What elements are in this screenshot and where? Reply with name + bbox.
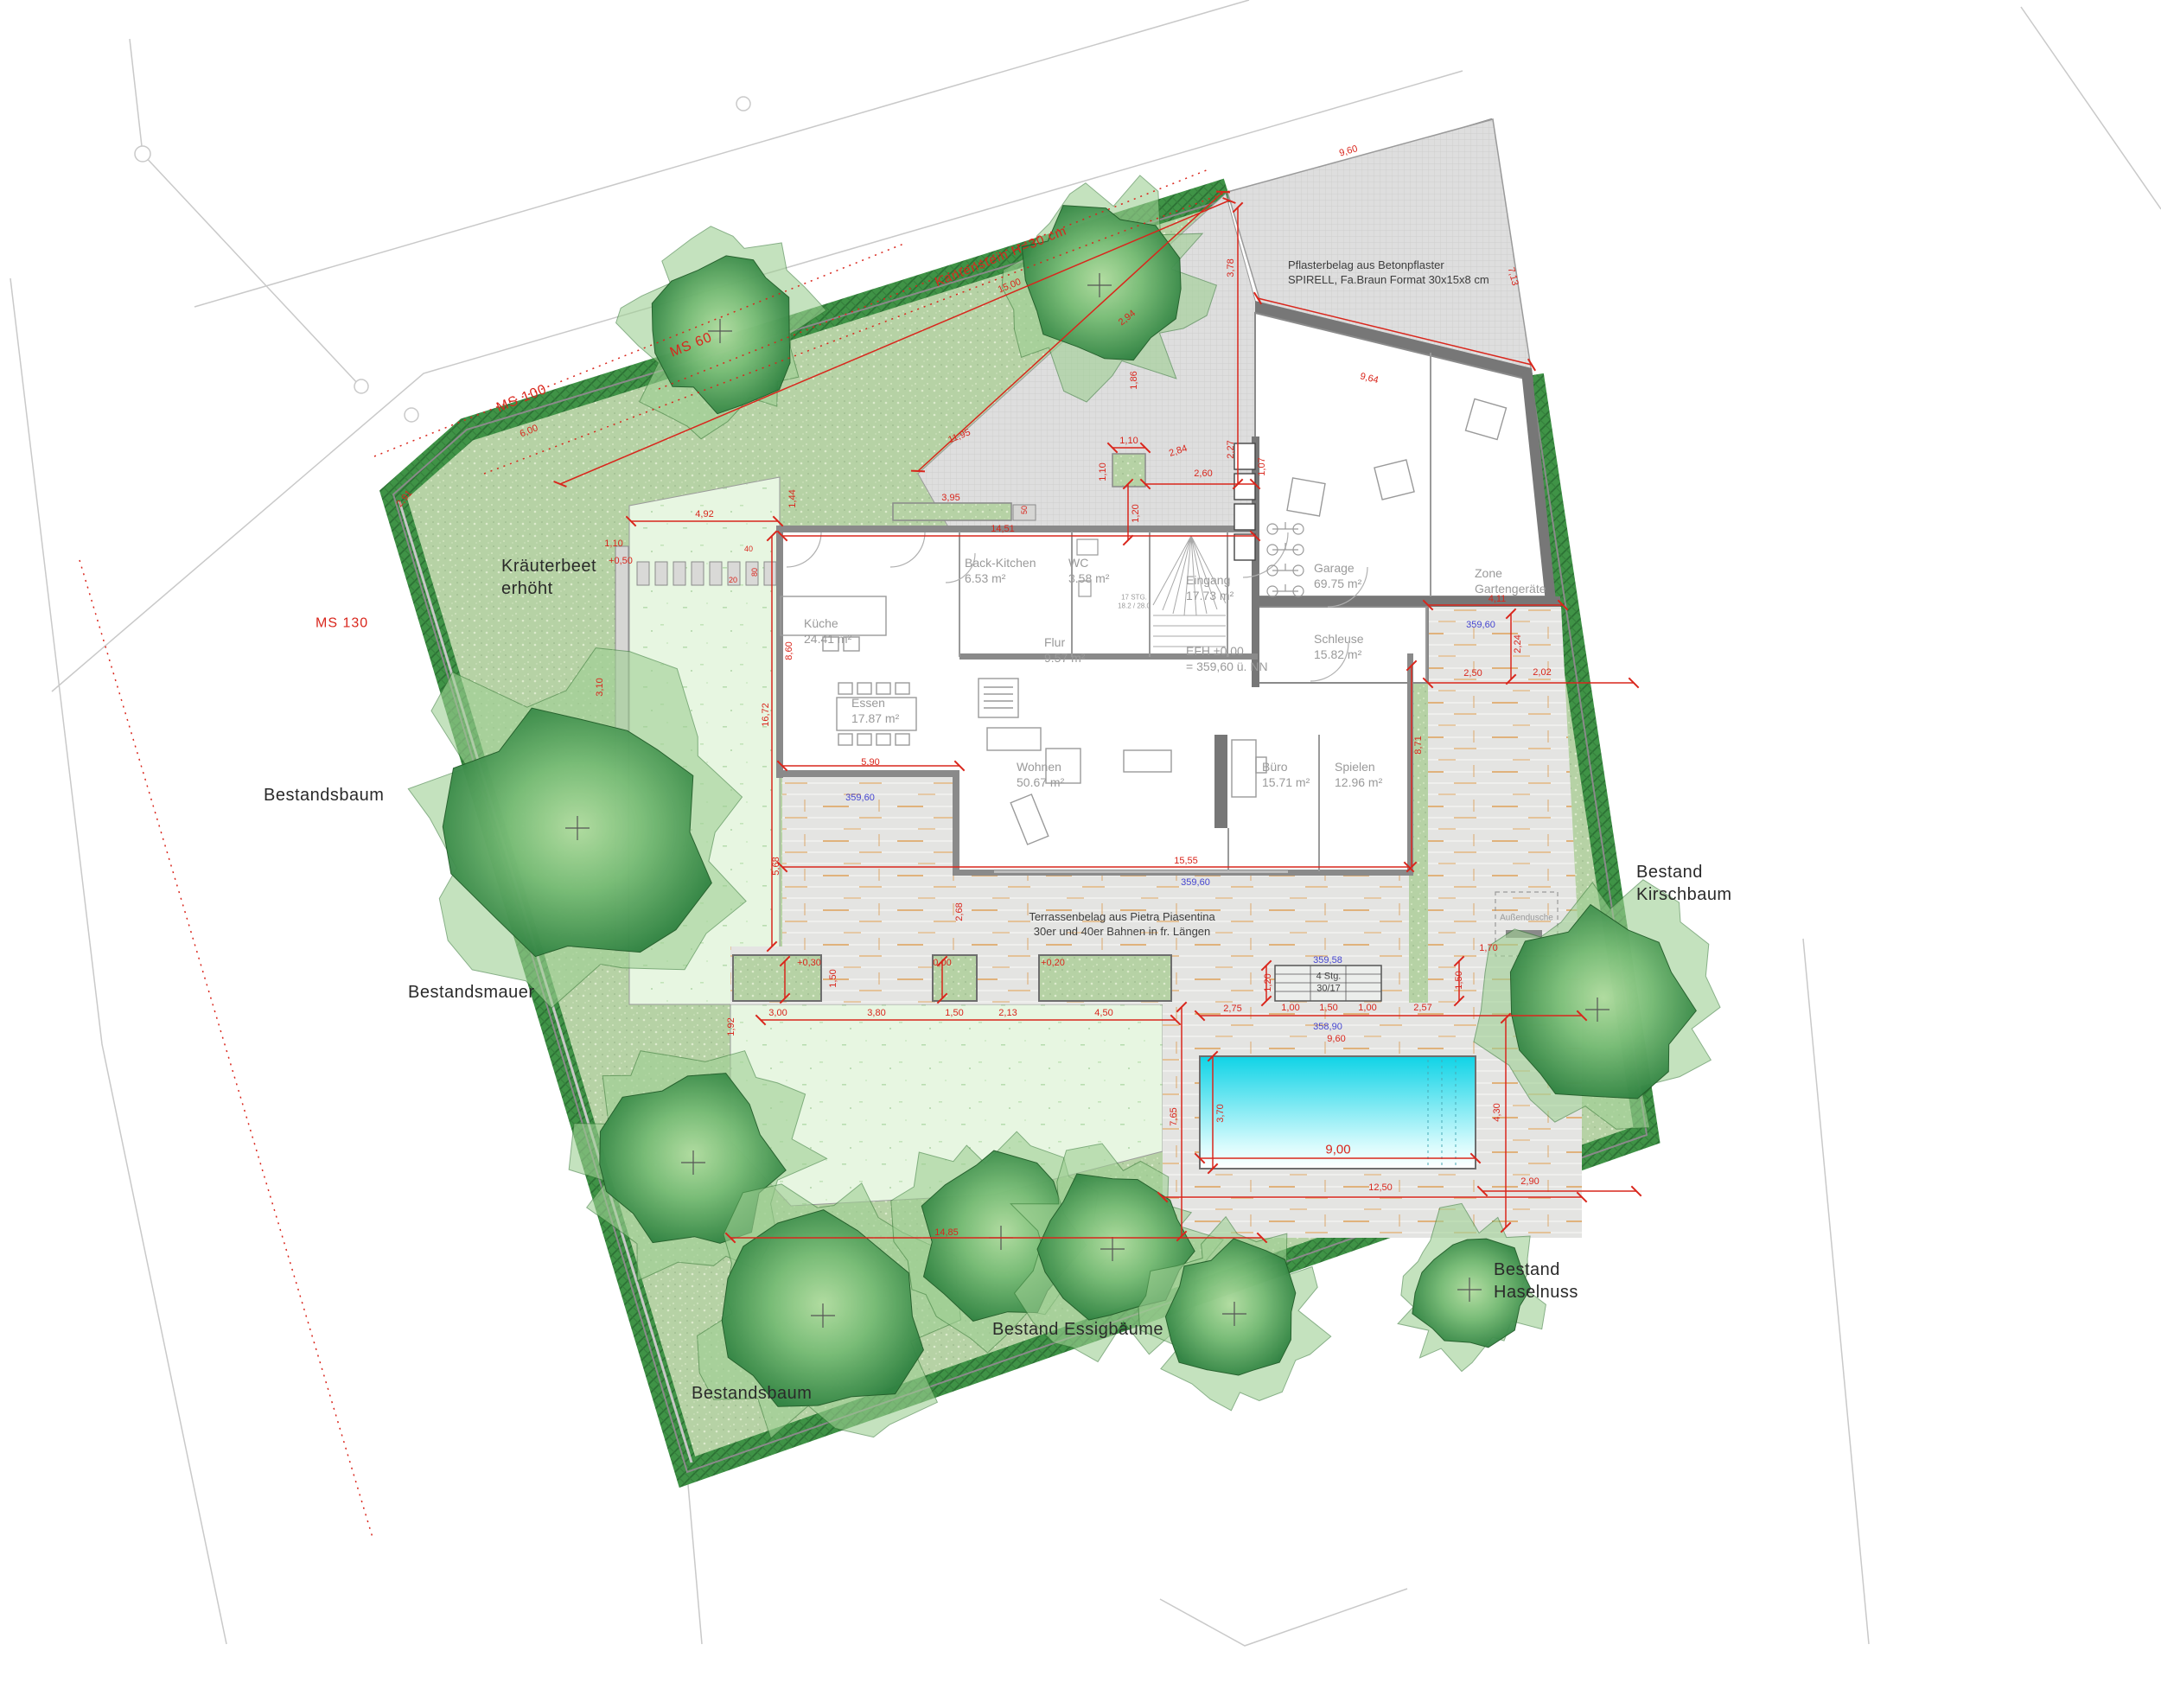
planter-plus-020 (1039, 955, 1171, 1001)
site-plan-page: { "page": {"background": "#ffffff", "kin… (0, 0, 2161, 1708)
north-planting-strip (893, 503, 1036, 520)
exterior-steps (1275, 966, 1381, 1001)
court-planting-square (1112, 454, 1145, 487)
planter-000 (933, 955, 977, 1001)
planter-plus-030 (733, 955, 821, 1001)
pool (1200, 1056, 1476, 1169)
dining-table (837, 683, 916, 745)
site-plan-svg (0, 0, 2161, 1708)
planters (733, 955, 1171, 1001)
